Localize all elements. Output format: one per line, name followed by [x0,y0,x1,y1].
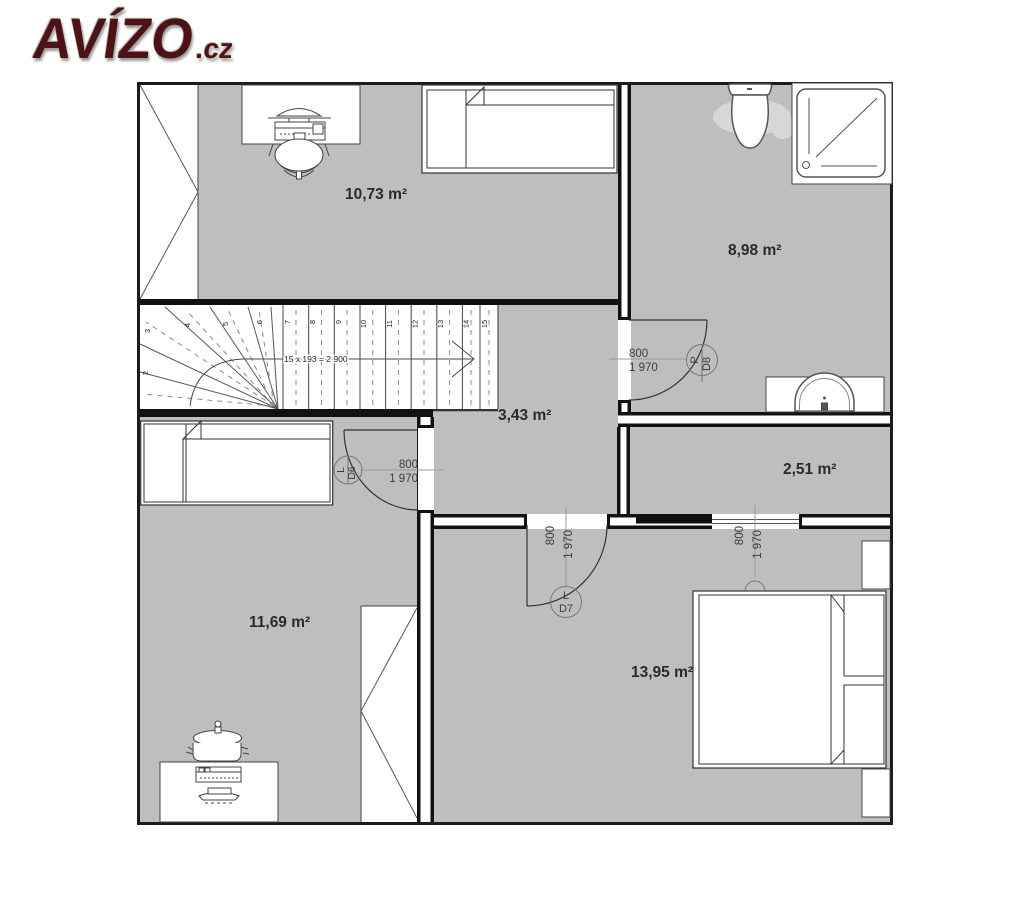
svg-text:800: 800 [545,526,557,545]
svg-text:P: P [689,356,701,363]
svg-text:D6: D6 [346,466,358,480]
svg-text:11,69 m²: 11,69 m² [249,614,310,631]
svg-text:1 970: 1 970 [629,362,658,374]
svg-text:.cz: .cz [194,33,235,64]
svg-text:8: 8 [308,320,317,324]
svg-text:1 970: 1 970 [752,530,764,559]
svg-text:800: 800 [734,526,746,545]
svg-text:8,98 m²: 8,98 m² [728,242,781,259]
svg-text:D7: D7 [559,603,573,615]
svg-text:14: 14 [462,320,471,328]
svg-text:1 970: 1 970 [563,530,575,559]
svg-text:15: 15 [480,320,489,328]
svg-text:2: 2 [141,371,150,375]
svg-text:6: 6 [255,320,264,324]
svg-text:10,73 m²: 10,73 m² [345,186,407,203]
svg-text:3,43 m²: 3,43 m² [498,407,551,424]
svg-text:2,51 m²: 2,51 m² [783,461,836,478]
svg-text:1 970: 1 970 [389,473,418,485]
svg-text:L: L [563,590,569,602]
svg-text:3: 3 [143,329,152,333]
svg-text:800: 800 [399,459,418,471]
svg-text:800: 800 [629,348,648,360]
svg-text:10: 10 [359,320,368,328]
svg-text:13,95 m²: 13,95 m² [631,664,693,681]
svg-text:15 x 193 = 2 900: 15 x 193 = 2 900 [284,354,348,364]
svg-text:D8: D8 [701,357,713,371]
svg-text:4: 4 [183,323,192,327]
svg-text:11: 11 [385,320,394,328]
svg-text:5: 5 [221,322,230,326]
svg-text:13: 13 [436,320,445,328]
svg-text:12: 12 [411,320,420,328]
svg-text:9: 9 [334,320,343,324]
svg-text:7: 7 [283,320,292,324]
svg-text:AVÍZO: AVÍZO [29,7,198,71]
